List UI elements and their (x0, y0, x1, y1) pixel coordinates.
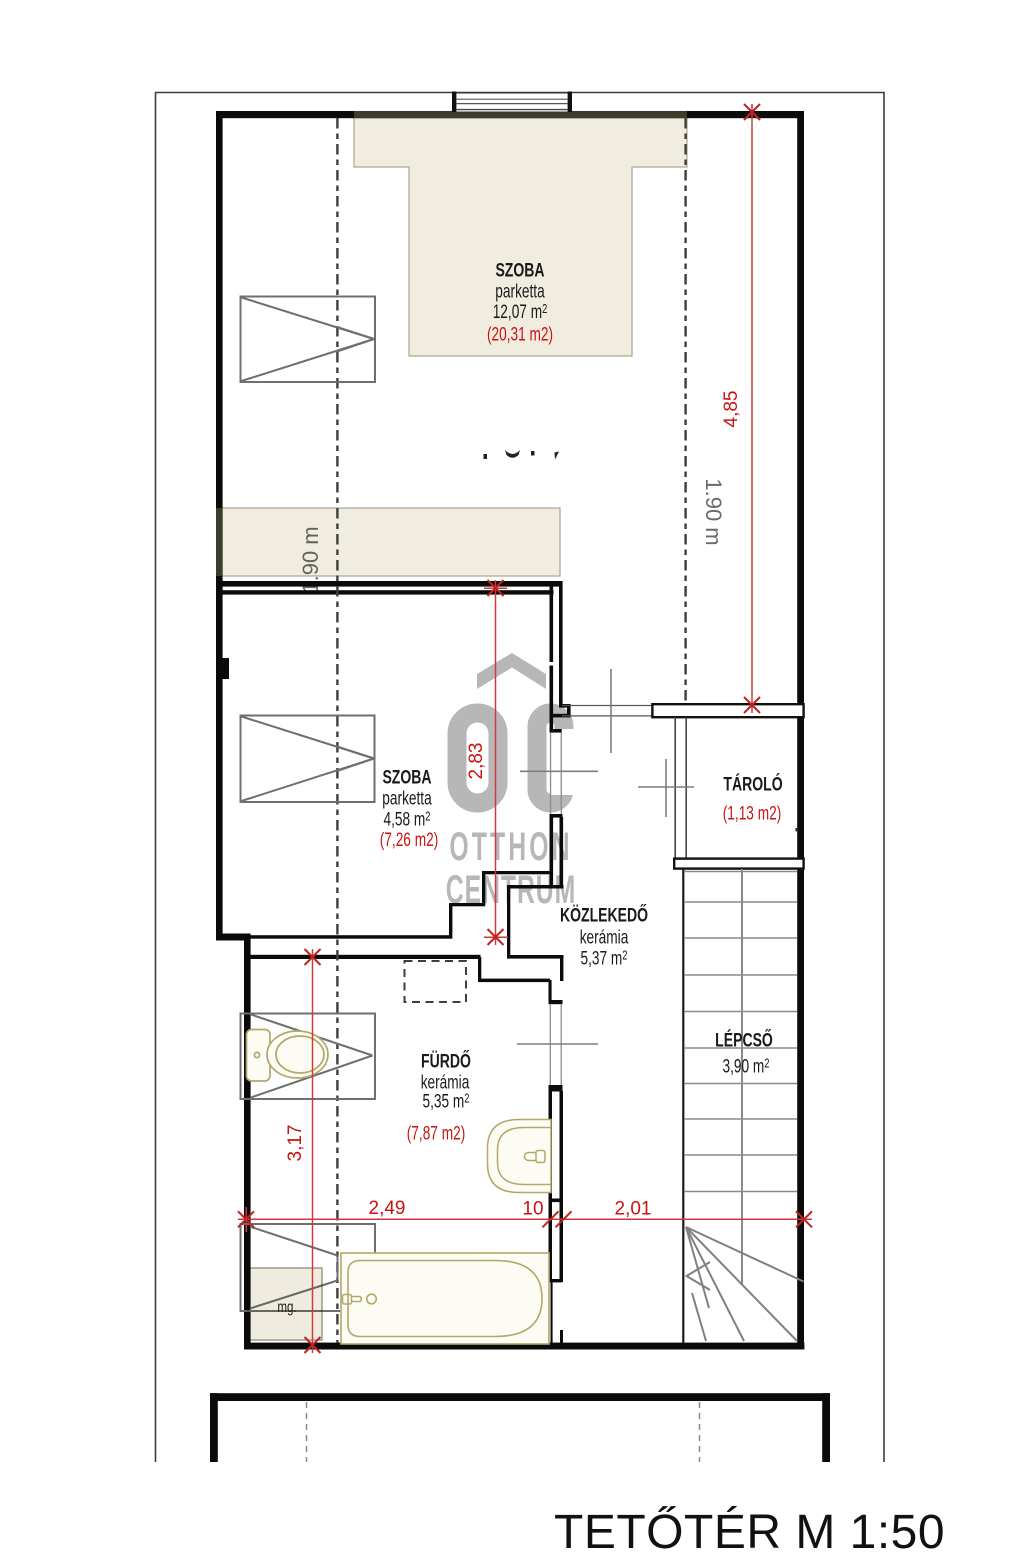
svg-text:KÖZLEKEDŐ: KÖZLEKEDŐ (560, 904, 648, 926)
svg-text:(7,26 m2): (7,26 m2) (380, 829, 439, 851)
svg-text:parketta: parketta (495, 280, 545, 302)
svg-text:2,01: 2,01 (615, 1199, 652, 1220)
svg-text:2,83: 2,83 (466, 743, 487, 780)
svg-text:TETŐTÉR M 1:50: TETŐTÉR M 1:50 (554, 1506, 945, 1558)
svg-text:2,49: 2,49 (369, 1198, 406, 1219)
svg-text:(1,13 m2): (1,13 m2) (723, 802, 782, 824)
svg-text:mg.: mg. (277, 1298, 296, 1315)
svg-text:kerámia: kerámia (580, 926, 629, 948)
svg-text:TÁROLÓ: TÁROLÓ (723, 773, 782, 795)
svg-text:FÜRDŐ: FÜRDŐ (421, 1050, 471, 1072)
svg-text:parketta: parketta (382, 787, 432, 809)
svg-text:12,07 m2: 12,07 m2 (493, 301, 548, 323)
svg-text:(7,87 m2): (7,87 m2) (407, 1122, 466, 1144)
svg-text:4,58 m2: 4,58 m2 (383, 808, 430, 830)
svg-text:OTTHON: OTTHON (449, 825, 572, 869)
svg-text:4,85: 4,85 (721, 391, 742, 428)
svg-text:5,35 m2: 5,35 m2 (422, 1090, 469, 1112)
svg-text:LÉPCSŐ: LÉPCSŐ (715, 1029, 773, 1051)
svg-text:3,17: 3,17 (285, 1125, 306, 1162)
svg-text:10: 10 (522, 1199, 543, 1220)
svg-text:(20,31 m2): (20,31 m2) (487, 323, 553, 345)
svg-text:SZOBA: SZOBA (382, 766, 431, 788)
svg-text:5,37 m2: 5,37 m2 (580, 947, 627, 969)
svg-text:3,90 m2: 3,90 m2 (722, 1055, 769, 1077)
svg-text:SZOBA: SZOBA (495, 259, 544, 281)
svg-text:1.90 m: 1.90 m (701, 478, 726, 545)
